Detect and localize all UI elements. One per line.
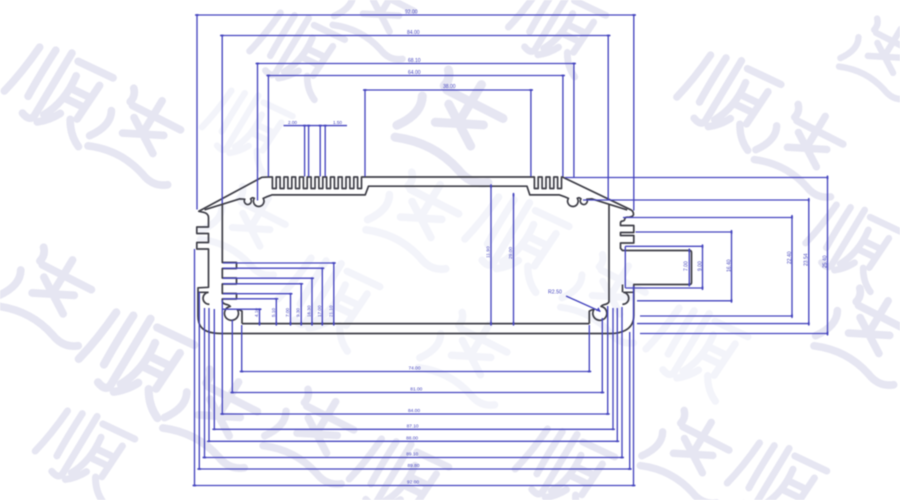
svg-text:25.40: 25.40 (822, 255, 828, 268)
svg-text:21.10: 21.10 (328, 305, 333, 317)
svg-text:7.00: 7.00 (285, 308, 290, 317)
svg-text:9.00: 9.00 (697, 261, 703, 271)
svg-text:84.00: 84.00 (407, 30, 420, 36)
svg-text:84.00: 84.00 (408, 408, 420, 414)
svg-text:1.50: 1.50 (333, 120, 342, 125)
svg-text:23.54: 23.54 (804, 253, 810, 266)
svg-text:16.40: 16.40 (726, 259, 732, 272)
svg-text:11.90: 11.90 (486, 246, 492, 258)
svg-text:89.80: 89.80 (408, 463, 420, 469)
svg-text:74.00: 74.00 (409, 366, 421, 372)
svg-text:2.00: 2.00 (288, 120, 297, 125)
svg-text:5.10: 5.10 (271, 308, 276, 317)
svg-text:92.00: 92.00 (405, 10, 418, 16)
svg-text:9.30: 9.30 (296, 308, 301, 317)
svg-text:64.00: 64.00 (408, 70, 421, 76)
svg-text:R2.50: R2.50 (548, 290, 562, 296)
svg-text:7.00: 7.00 (683, 261, 689, 271)
svg-text:89.10: 89.10 (406, 452, 418, 458)
svg-text:87.10: 87.10 (407, 423, 419, 429)
svg-text:22.40: 22.40 (787, 251, 793, 264)
svg-text:16.30: 16.30 (307, 305, 312, 317)
svg-text:81.00: 81.00 (410, 387, 422, 393)
svg-text:88.00: 88.00 (406, 435, 418, 441)
svg-text:68.10: 68.10 (408, 58, 421, 64)
svg-text:38.00: 38.00 (443, 84, 456, 90)
svg-text:17.00: 17.00 (317, 305, 322, 317)
svg-text:29.00: 29.00 (508, 247, 514, 259)
svg-text:92.00: 92.00 (407, 480, 419, 486)
svg-text:4.10: 4.10 (254, 308, 259, 317)
